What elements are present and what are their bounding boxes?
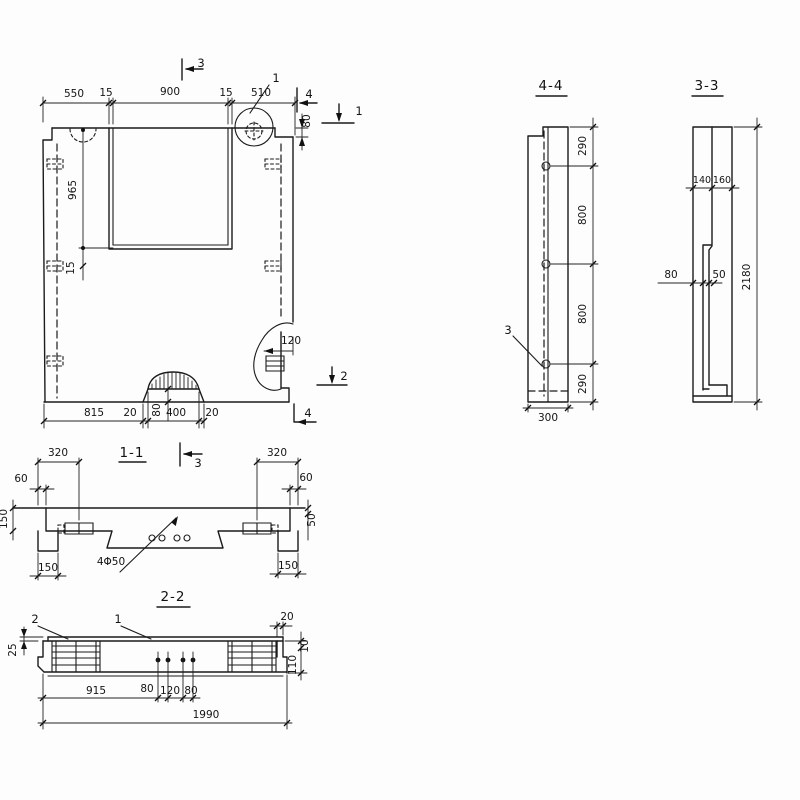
panel-outline	[43, 128, 293, 402]
hole-3	[174, 535, 180, 541]
section-2-2-title: 2-2	[160, 589, 185, 605]
dim-80-right: 80	[184, 685, 197, 697]
marker-3: 3	[504, 323, 511, 337]
section-1-1-title: 1-1	[119, 445, 144, 461]
dimensions-main	[40, 97, 308, 428]
dim-150-edge: 150	[0, 509, 10, 529]
dim-60-right: 60	[299, 472, 312, 484]
marker-2: 2	[31, 612, 38, 626]
marker-section-2: 2	[340, 369, 347, 383]
dim-15-sill: 15	[65, 261, 77, 274]
section-markers: 3 1 4 1 2 4	[182, 56, 363, 425]
marker-1: 1	[114, 612, 121, 626]
dim-915: 915	[86, 685, 106, 697]
label-holes: 4Φ50	[97, 556, 125, 568]
marker-3: 3	[194, 456, 201, 470]
section-1-1: 1-1 3 4Φ50	[0, 443, 318, 580]
dim-1990: 1990	[193, 709, 220, 721]
dim-20: 20	[280, 611, 293, 623]
dim-2180: 2180	[741, 264, 753, 291]
dim-120-notch: 120	[281, 335, 301, 347]
dim-80-spout: 80	[151, 403, 163, 416]
marker-section-4-top: 4	[305, 87, 312, 101]
lifting-hole-detail	[235, 108, 273, 146]
dim-50: 50	[712, 269, 725, 281]
dim-25: 25	[7, 643, 19, 656]
hole-4	[184, 535, 190, 541]
dim-290-top: 290	[577, 136, 589, 156]
dim-815: 815	[84, 407, 104, 419]
foot-left	[38, 531, 58, 551]
dim-800-upper: 800	[577, 205, 589, 225]
window-opening	[109, 128, 232, 249]
dim-60-left: 60	[14, 473, 27, 485]
section-3-3: 3-3 140 160 80 50 2180	[658, 78, 762, 410]
dim-20-right: 20	[205, 407, 218, 419]
hole-1	[149, 535, 155, 541]
dim-800-lower: 800	[577, 304, 589, 324]
dim-965: 965	[67, 180, 79, 200]
drain-spout	[143, 372, 204, 402]
marker-section-3: 3	[197, 56, 204, 70]
section-2-2: 2-2 2 1	[7, 589, 311, 729]
technical-drawing-sheet: 550 15 900 15 510 80 965 15 120 815 20 8…	[0, 0, 800, 800]
embedded-anchors	[47, 159, 281, 366]
marker-section-1: 1	[355, 104, 362, 118]
hidden-edges	[57, 129, 281, 398]
tube-hole-bottom	[542, 360, 550, 368]
dimensions-4-4	[523, 118, 598, 412]
embedded-plate-left	[65, 523, 93, 534]
dim-550: 550	[64, 88, 84, 100]
dim-80-step: 80	[301, 114, 313, 127]
dim-320-left: 320	[48, 447, 68, 459]
foot-right	[278, 531, 298, 551]
embedded-plate-right	[243, 523, 271, 534]
reinforcement-grid-right	[228, 641, 276, 672]
section-4-4: 4-4 3 290 800 800 290 300	[504, 78, 598, 424]
section-3-3-title: 3-3	[694, 78, 719, 94]
tube-hole-top	[542, 162, 550, 170]
dim-290-bottom: 290	[577, 374, 589, 394]
drawing-canvas: 550 15 900 15 510 80 965 15 120 815 20 8…	[0, 0, 800, 800]
dim-150-foot-right: 150	[278, 560, 298, 572]
tube-hole-mid	[542, 260, 550, 268]
dim-140: 140	[693, 175, 711, 186]
dim-80-left: 80	[140, 683, 153, 695]
holes-leader	[120, 518, 176, 572]
dim-20-left: 20	[123, 407, 136, 419]
dim-15-left: 15	[99, 87, 112, 99]
section-4-4-title: 4-4	[538, 78, 563, 94]
dim-15-right: 15	[219, 87, 232, 99]
reinforcement-grid-left	[52, 641, 100, 672]
dim-80: 80	[664, 269, 677, 281]
dim-120: 120	[160, 685, 180, 697]
marker-section-4-bottom: 4	[304, 406, 311, 420]
dim-400: 400	[166, 407, 186, 419]
marker-detail-1: 1	[272, 71, 279, 85]
dim-300: 300	[538, 412, 558, 424]
dim-900: 900	[160, 86, 180, 98]
dim-50-right: 50	[306, 513, 318, 526]
hole-2	[159, 535, 165, 541]
dim-10: 10	[299, 639, 311, 652]
corner-notch	[254, 323, 293, 390]
dim-160: 160	[713, 175, 731, 186]
dim-320-right: 320	[267, 447, 287, 459]
dim-110: 110	[287, 655, 299, 675]
dim-150-foot-left: 150	[38, 562, 58, 574]
main-elevation-view: 550 15 900 15 510 80 965 15 120 815 20 8…	[40, 56, 363, 428]
freehand-cloud	[254, 323, 293, 390]
dowel-bars	[156, 652, 196, 668]
